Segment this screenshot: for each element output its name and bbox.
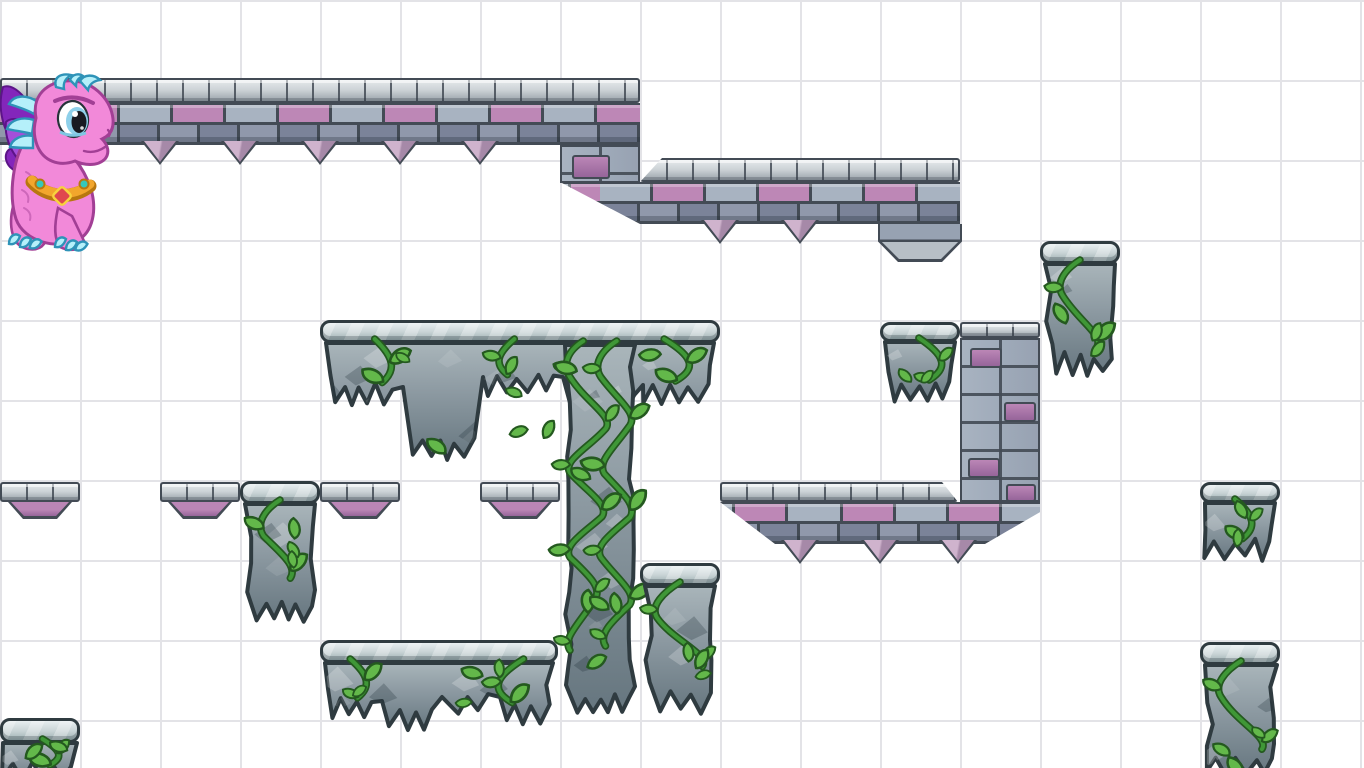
pink-brick xyxy=(1006,484,1036,502)
castle-cap xyxy=(480,482,560,502)
hanging-spike xyxy=(221,141,259,165)
level-canvas[interactable] xyxy=(0,0,1364,768)
pink-brick xyxy=(1004,402,1036,422)
castle-cap xyxy=(160,482,240,502)
moss-body xyxy=(1202,501,1278,568)
collar-gem-teal-left xyxy=(36,180,45,189)
pink-brick xyxy=(970,348,1002,368)
moss-body xyxy=(0,741,80,768)
castle-cap xyxy=(960,322,1040,338)
dragon-sprite[interactable] xyxy=(0,74,118,252)
hanging-spike xyxy=(701,220,739,244)
castle-foot xyxy=(878,224,962,262)
moss-body xyxy=(323,341,717,467)
moss-body xyxy=(242,502,318,630)
hanging-spike xyxy=(301,141,339,165)
castle-cap xyxy=(640,158,960,182)
hanging-spike xyxy=(781,540,819,564)
moss-body xyxy=(1042,262,1118,382)
hanging-spike xyxy=(381,141,419,165)
castle-cap xyxy=(720,482,958,502)
castle-brick-body xyxy=(560,182,960,224)
castle-underside-pad xyxy=(168,502,232,519)
moss-body xyxy=(882,340,958,410)
moss-body xyxy=(322,661,556,736)
hanging-spike xyxy=(781,220,819,244)
castle-underside-pad xyxy=(328,502,392,519)
castle-brick-body xyxy=(720,502,1040,544)
brick-row-lower xyxy=(560,201,960,224)
hanging-spike xyxy=(461,141,499,165)
tile-layer xyxy=(0,0,1364,768)
moss-body xyxy=(1202,663,1280,768)
hanging-spike xyxy=(939,540,977,564)
hanging-spike xyxy=(141,141,179,165)
hanging-spike xyxy=(861,540,899,564)
pink-brick xyxy=(572,155,610,179)
pink-brick xyxy=(968,458,1000,478)
collar-gem-teal-right xyxy=(80,180,89,189)
castle-cap xyxy=(0,482,80,502)
castle-underside-pad xyxy=(8,502,72,519)
castle-brick-column xyxy=(960,338,1040,502)
castle-cap xyxy=(320,482,400,502)
castle-brick-column xyxy=(560,145,640,183)
moss-body xyxy=(642,584,718,720)
moss-body xyxy=(562,343,638,723)
castle-underside-pad xyxy=(488,502,552,519)
